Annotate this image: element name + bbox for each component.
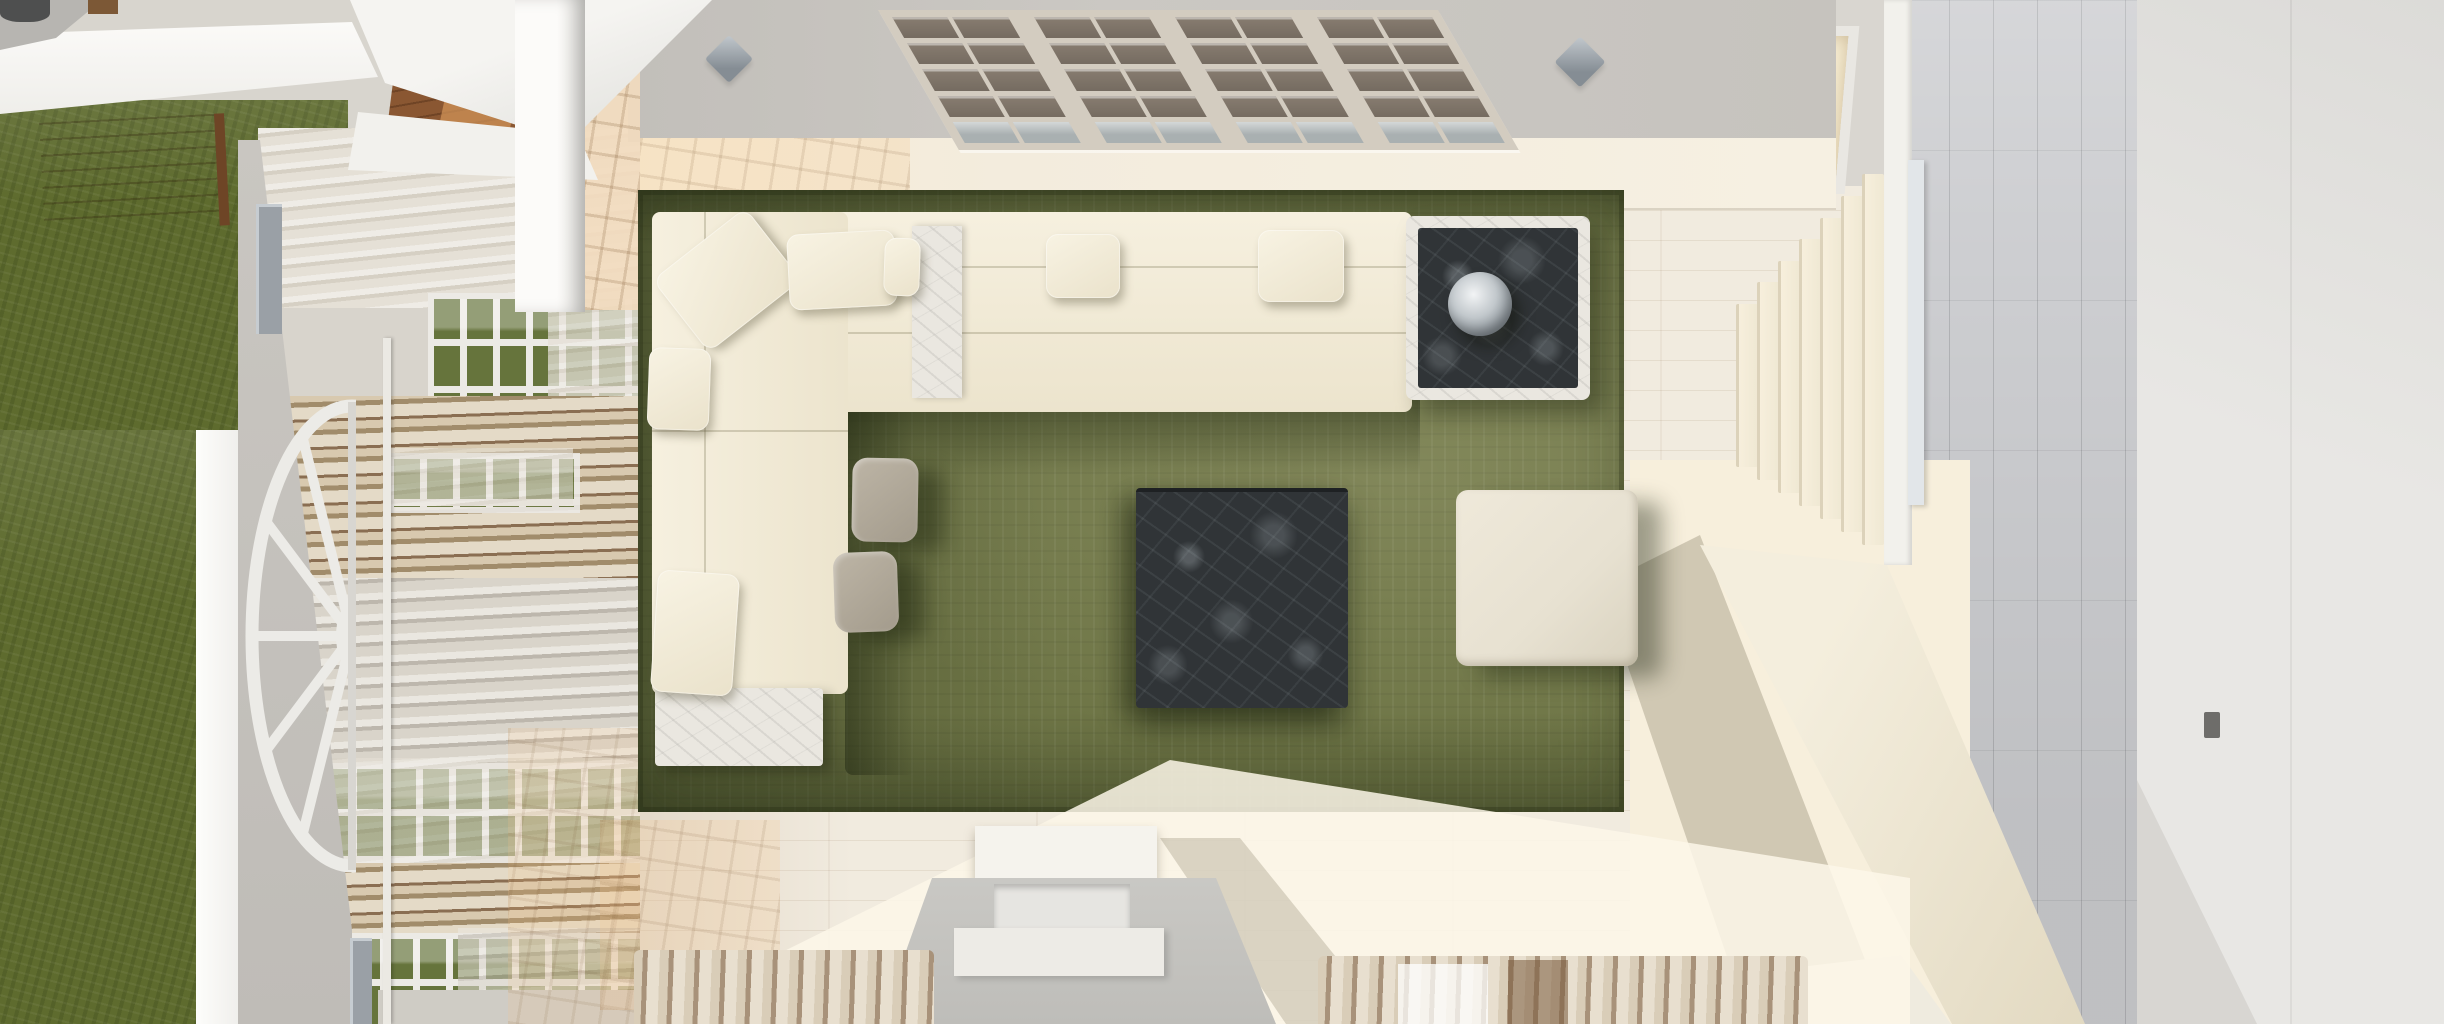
shelf-cell bbox=[1407, 69, 1474, 90]
stair-tread bbox=[1799, 239, 1821, 506]
side-table bbox=[1406, 216, 1590, 400]
shelf-cell bbox=[1235, 17, 1302, 38]
sofa-seam bbox=[652, 430, 848, 432]
shelf-cell bbox=[952, 17, 1019, 38]
shelf-cell bbox=[953, 122, 1020, 143]
lawn-strip bbox=[0, 430, 196, 1024]
wood-chip bbox=[88, 0, 118, 14]
fireplace-opening bbox=[994, 884, 1130, 930]
stair-tread bbox=[1820, 218, 1842, 519]
shelf-cell bbox=[998, 96, 1065, 117]
shelf-cell bbox=[1250, 43, 1317, 64]
corner-object bbox=[0, 0, 50, 22]
fireplace-front-band bbox=[954, 928, 1164, 976]
throw-pillow bbox=[786, 229, 898, 311]
shelf-cell bbox=[892, 17, 959, 38]
throw-pillow bbox=[647, 347, 712, 431]
shelf-cell bbox=[1317, 17, 1384, 38]
shelf-cell bbox=[1236, 122, 1303, 143]
fan-window-decor bbox=[240, 398, 356, 874]
stair-tread bbox=[1778, 261, 1800, 493]
curtain-pole bbox=[383, 338, 391, 1024]
throw-pillow bbox=[1046, 234, 1120, 298]
wall-frame-lower bbox=[350, 938, 372, 1024]
pouf-small bbox=[851, 457, 918, 542]
shelf-cell bbox=[1094, 17, 1161, 38]
shelf-cell bbox=[1296, 122, 1363, 143]
throw-pillow bbox=[650, 569, 740, 696]
shelf-cell bbox=[1094, 122, 1161, 143]
shelf-cell bbox=[1205, 69, 1272, 90]
shelf-cell bbox=[907, 43, 974, 64]
shelf-cell bbox=[1034, 17, 1101, 38]
shelf-cell bbox=[1347, 69, 1414, 90]
shelf-cell bbox=[1139, 96, 1206, 117]
throw-pillow bbox=[883, 237, 921, 296]
white-post bbox=[515, 0, 585, 312]
shelf-cell bbox=[1422, 96, 1489, 117]
render-viewport bbox=[0, 0, 2444, 1024]
shelf-cell bbox=[1154, 122, 1221, 143]
shelf-cell bbox=[1175, 17, 1242, 38]
shelf-cell bbox=[1190, 43, 1257, 64]
shelf-cell bbox=[967, 43, 1034, 64]
curtain-patch-brown bbox=[1508, 960, 1568, 1024]
shelf-cell bbox=[1392, 43, 1459, 64]
divider-shelf-grid bbox=[878, 10, 1519, 150]
shelf-cell bbox=[1064, 69, 1131, 90]
staircase-treads bbox=[1736, 172, 1886, 564]
stair-tread bbox=[1736, 304, 1758, 467]
stair-tread bbox=[1862, 174, 1884, 545]
bottom-curtain-left bbox=[634, 950, 934, 1024]
fireplace-mantel bbox=[975, 826, 1157, 882]
wall-frame-upper bbox=[256, 204, 282, 334]
glass-sphere-decor bbox=[1448, 272, 1512, 336]
shelf-cell bbox=[937, 96, 1004, 117]
curtain-patch-white bbox=[1398, 964, 1488, 1024]
shelf-cell bbox=[1049, 43, 1116, 64]
shelf-cell bbox=[1332, 43, 1399, 64]
cream-ottoman bbox=[1456, 490, 1638, 666]
shelf-cell bbox=[1377, 122, 1444, 143]
shelf-cell bbox=[1266, 69, 1333, 90]
shelf-cell bbox=[1220, 96, 1287, 117]
bottom-curtain-right bbox=[1318, 956, 1808, 1024]
shelf-cell bbox=[1079, 96, 1146, 117]
chaise-marble-base bbox=[655, 688, 823, 766]
shelf-cell bbox=[1013, 122, 1080, 143]
shelf-cell bbox=[1362, 96, 1429, 117]
stair-tread bbox=[1757, 282, 1779, 480]
coffee-table bbox=[1136, 488, 1348, 708]
shelf-cell bbox=[922, 69, 989, 90]
sheer-over-window-2 bbox=[383, 448, 573, 506]
shelf-cell bbox=[1281, 96, 1348, 117]
deck-table bbox=[39, 113, 230, 235]
door-edge-strip bbox=[1908, 160, 1924, 505]
exterior-wall-edge bbox=[196, 430, 238, 1024]
shelf-cell bbox=[1124, 69, 1191, 90]
shelf-cell bbox=[983, 69, 1050, 90]
shelf-cell bbox=[1437, 122, 1504, 143]
wall-slot bbox=[2204, 712, 2220, 738]
stair-tread bbox=[1841, 196, 1863, 532]
right-wall-divider bbox=[2290, 0, 2292, 1024]
shelf-cell bbox=[1377, 17, 1444, 38]
throw-pillow bbox=[1258, 230, 1344, 302]
shelf-cell bbox=[1109, 43, 1176, 64]
pouf-small bbox=[833, 551, 900, 633]
